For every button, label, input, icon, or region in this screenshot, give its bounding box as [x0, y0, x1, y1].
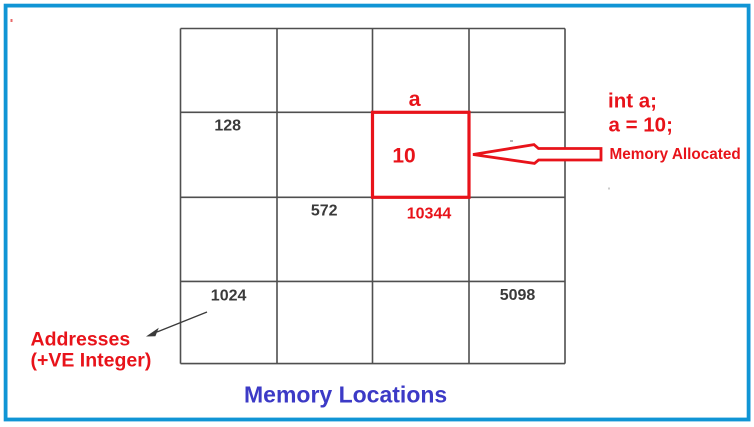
svg-text:Addresses: Addresses	[31, 329, 131, 351]
svg-text:1024: 1024	[211, 287, 247, 304]
svg-text:5098: 5098	[500, 287, 536, 304]
svg-text:a: a	[409, 87, 422, 111]
svg-text:10344: 10344	[407, 206, 452, 223]
svg-text:10: 10	[392, 144, 415, 167]
svg-text:572: 572	[311, 203, 338, 220]
svg-text:128: 128	[214, 118, 241, 135]
svg-text:Memory Locations: Memory Locations	[244, 382, 447, 408]
svg-text:(+VE Integer): (+VE Integer)	[31, 349, 152, 371]
svg-text:int a;: int a;	[608, 90, 657, 113]
svg-text:a = 10;: a = 10;	[609, 113, 673, 136]
svg-text:Memory Allocated: Memory Allocated	[610, 146, 741, 163]
